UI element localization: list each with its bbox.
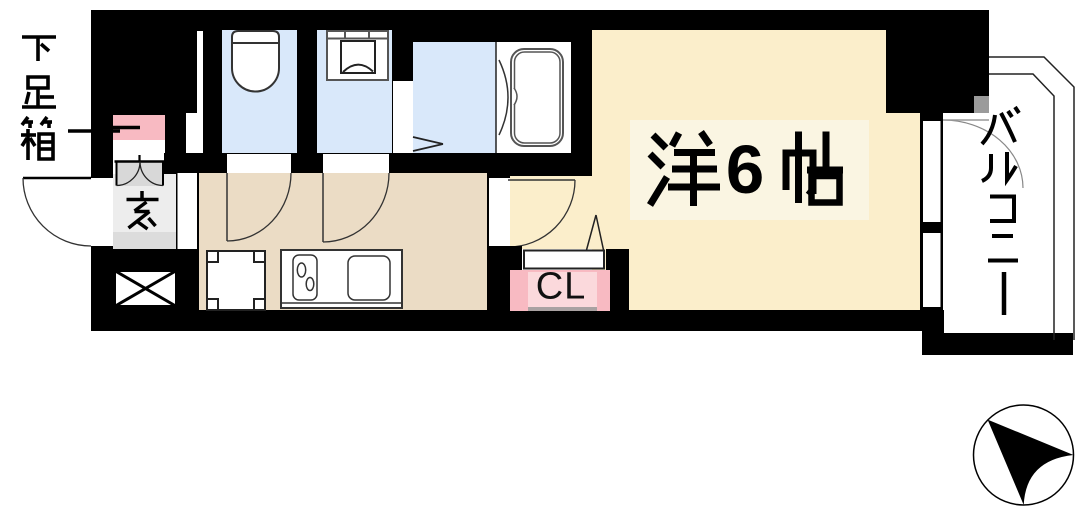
svg-text:CL: CL bbox=[536, 266, 587, 308]
svg-text:6: 6 bbox=[726, 131, 764, 208]
